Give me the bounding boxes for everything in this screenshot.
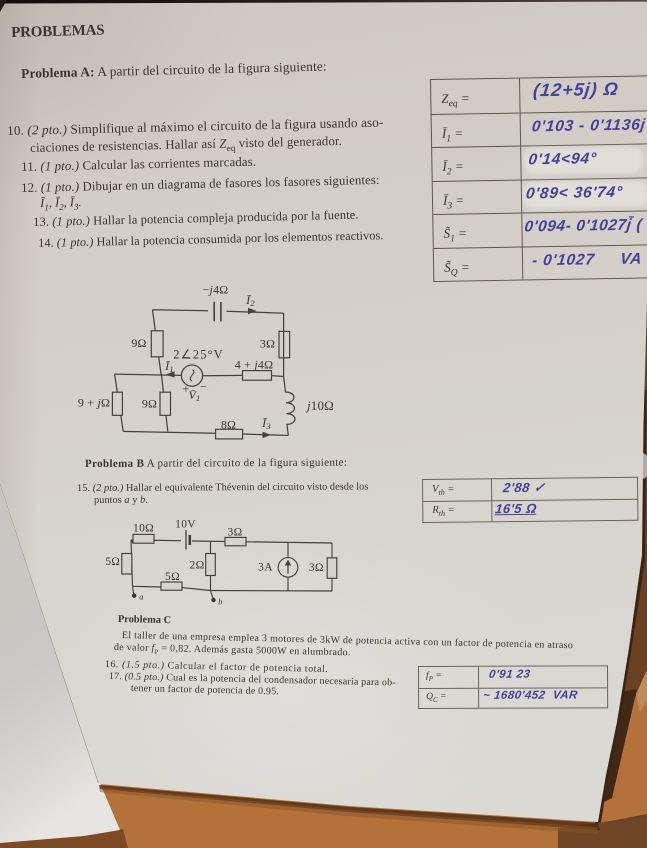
- svg-text:2Ω: 2Ω: [190, 559, 205, 571]
- svg-text:5Ω: 5Ω: [105, 556, 120, 568]
- svg-text:10Ω: 10Ω: [133, 522, 154, 534]
- svg-text:3Ω: 3Ω: [228, 527, 243, 539]
- svg-text:3Ω: 3Ω: [309, 562, 324, 574]
- svg-text:Ī2: Ī2: [245, 293, 255, 308]
- svg-text:Ī3: Ī3: [261, 416, 271, 431]
- svg-text:−: −: [200, 380, 207, 394]
- svg-text:9Ω: 9Ω: [142, 397, 157, 411]
- svg-text:j10Ω: j10Ω: [305, 398, 334, 413]
- svg-text:10V: 10V: [175, 518, 196, 530]
- svg-text:3A: 3A: [258, 562, 273, 574]
- svg-text:9Ω: 9Ω: [131, 336, 146, 350]
- svg-text:9 + jΩ: 9 + jΩ: [78, 396, 110, 410]
- svg-text:2∠25°V: 2∠25°V: [173, 348, 224, 362]
- svg-text:8Ω: 8Ω: [221, 418, 236, 432]
- svg-text:5Ω: 5Ω: [165, 571, 180, 583]
- svg-text:V̄1: V̄1: [189, 388, 201, 403]
- svg-text:a: a: [139, 592, 144, 602]
- svg-text:3Ω: 3Ω: [260, 337, 275, 351]
- svg-text:−j4Ω: −j4Ω: [203, 283, 229, 297]
- svg-text:4 + j4Ω: 4 + j4Ω: [235, 358, 273, 372]
- svg-text:b: b: [218, 597, 223, 607]
